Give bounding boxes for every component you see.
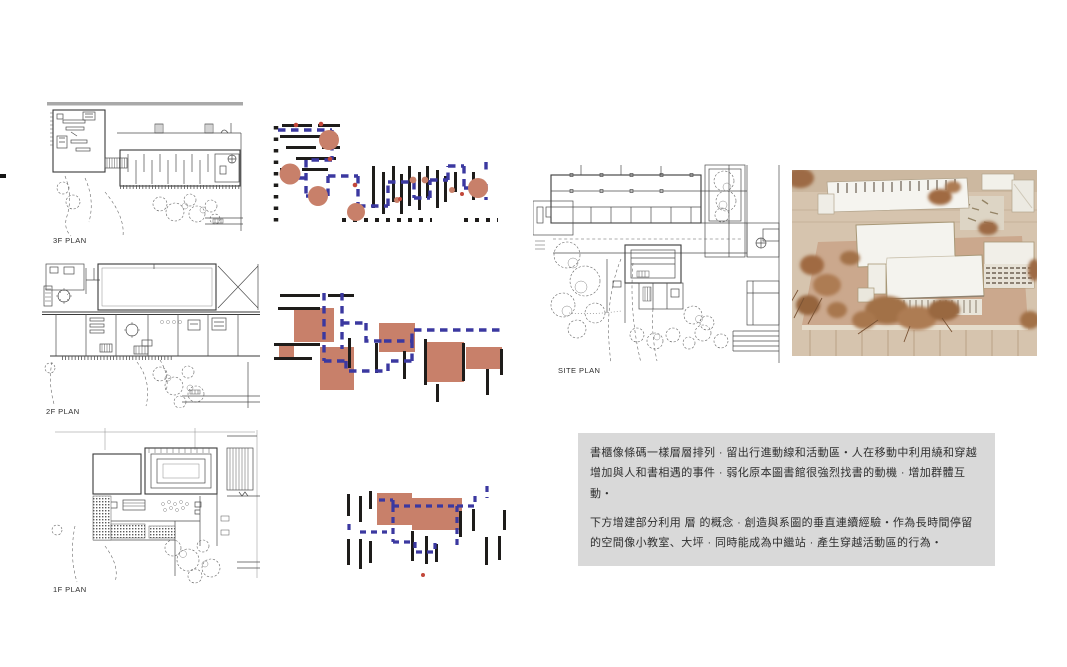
label-1f-plan: 1F PLAN bbox=[53, 585, 87, 594]
label-2f-plan: 2F PLAN bbox=[46, 407, 80, 416]
page-edge-mark bbox=[0, 174, 6, 178]
description-paragraph-1: 書櫃像條碼一樣層層排列 · 留出行進動線和活動區・人在移動中利用繞和穿越增加與人… bbox=[590, 443, 983, 504]
floor-plan-1f-drawing bbox=[45, 426, 260, 584]
site-plan-drawing bbox=[533, 163, 781, 365]
floor-plan-3f-drawing bbox=[45, 96, 247, 238]
floor-plan-2f-drawing bbox=[42, 258, 260, 408]
description-paragraph-2: 下方增建部分利用 層 的概念 · 創造與系圖的垂直連續經驗・作為長時間停留的空間… bbox=[590, 513, 983, 554]
diagram-2f-circulation bbox=[272, 283, 504, 405]
diagram-1f-circulation bbox=[335, 482, 510, 587]
description-panel: 書櫃像條碼一樣層層排列 · 留出行進動線和活動區・人在移動中利用繞和穿越增加與人… bbox=[578, 433, 995, 566]
label-site-plan: SITE PLAN bbox=[558, 366, 600, 375]
portfolio-page: 3F PLAN bbox=[0, 0, 1067, 667]
diagram-3f-circulation bbox=[272, 110, 502, 240]
physical-model-photo bbox=[792, 170, 1037, 356]
label-3f-plan: 3F PLAN bbox=[53, 236, 87, 245]
